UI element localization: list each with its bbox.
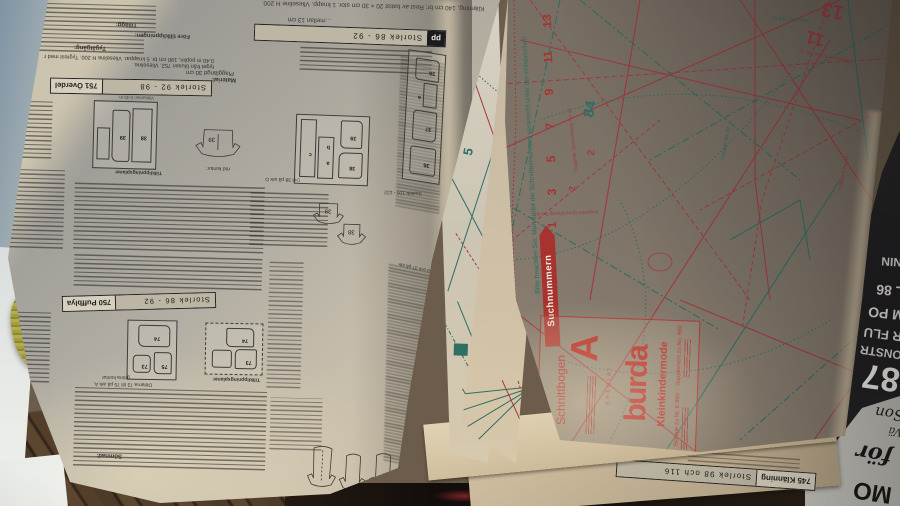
band-size: Storlek 86 - 92 [116, 293, 215, 310]
contour-note: röd kontur: [184, 164, 230, 171]
piece-number: 38 [349, 165, 355, 171]
sheet-number-2b: 2 [566, 179, 577, 192]
search-number: 5 [543, 149, 558, 170]
pattern-piece [423, 83, 438, 109]
search-number: 7 [542, 116, 557, 137]
pattern-piece [299, 119, 317, 178]
contour-note-750: gröna kontur [80, 374, 130, 381]
piece-letter: b [327, 144, 331, 150]
piece-number: 38 [347, 228, 355, 234]
paragraph-lines [266, 262, 303, 389]
piece-number: 39 [120, 134, 126, 140]
piece-number: 73 [142, 363, 148, 369]
search-number: 11 [540, 47, 555, 68]
cutting-layout-751: 39 38 [92, 100, 158, 170]
band-size: Storlek 92 - 98 [102, 80, 211, 96]
piece-number: 36 [423, 161, 429, 168]
garment-sketch: 39 [192, 125, 245, 160]
paragraph-lines [73, 183, 265, 254]
search-number: 13 [539, 11, 554, 32]
band-code: 745 Klänning [756, 470, 816, 490]
solid-teal-mark [454, 343, 468, 355]
piece-number: 39 [350, 135, 356, 141]
paragraph-lines [74, 254, 263, 291]
pattern-piece [226, 328, 254, 347]
piece-number: 37 [425, 125, 431, 132]
piece-number: 38 [141, 134, 147, 140]
band-code: 751 Överdel [51, 79, 103, 94]
band-code: pp [427, 31, 445, 47]
parts-note-750: Delarna 73 till 75 på ark A, [78, 380, 152, 387]
garment-sketch-pair: 38 39 [312, 199, 370, 249]
size-band-751: Storlek 92 - 98 751 Överdel [50, 78, 212, 97]
cutting-layout-tall: 36 37 a 36 [402, 49, 447, 185]
piece-letter: c [309, 151, 312, 157]
search-number: 1 [544, 215, 559, 236]
piece-number: 36 [429, 70, 435, 77]
white-sheet [0, 454, 69, 506]
sheet-number-2: 2 [586, 143, 598, 156]
piece-number: 39 [324, 207, 332, 213]
piece-number: 73 [246, 359, 252, 365]
search-number: 9 [541, 82, 556, 103]
cutting-layout-750b: 73 74 [205, 322, 264, 375]
piece-number: 74 [154, 335, 160, 341]
pattern-piece [317, 137, 334, 180]
piece-number: 39 [208, 136, 215, 142]
piece-number: 74 [242, 337, 248, 343]
heading-somnad: Sömnad: [78, 451, 122, 458]
piece-letter: a [418, 94, 421, 100]
photo-of-sewing-pattern-magazine: NIN L 86 M PO R FLU ONSTR 87 Son Vä för … [0, 0, 900, 506]
heading-tygatgang: Tygåtgång: [58, 43, 106, 50]
plan-title-750: Tillklippningsplaner [200, 375, 260, 382]
band-code: 750 Puffblya [63, 296, 117, 311]
cutting-layout-750a: 75 73 74 [126, 320, 177, 381]
cutting-layout-top: 38 39 c a b [294, 114, 370, 187]
piece-number: 75 [162, 363, 168, 369]
pattern-piece [415, 57, 440, 83]
pattern-piece [212, 350, 232, 368]
piece-letter: a [326, 160, 329, 166]
search-number: 3 [544, 182, 559, 203]
pattern-piece [96, 127, 110, 159]
heading-tillagg: Tillägg: [95, 20, 137, 27]
